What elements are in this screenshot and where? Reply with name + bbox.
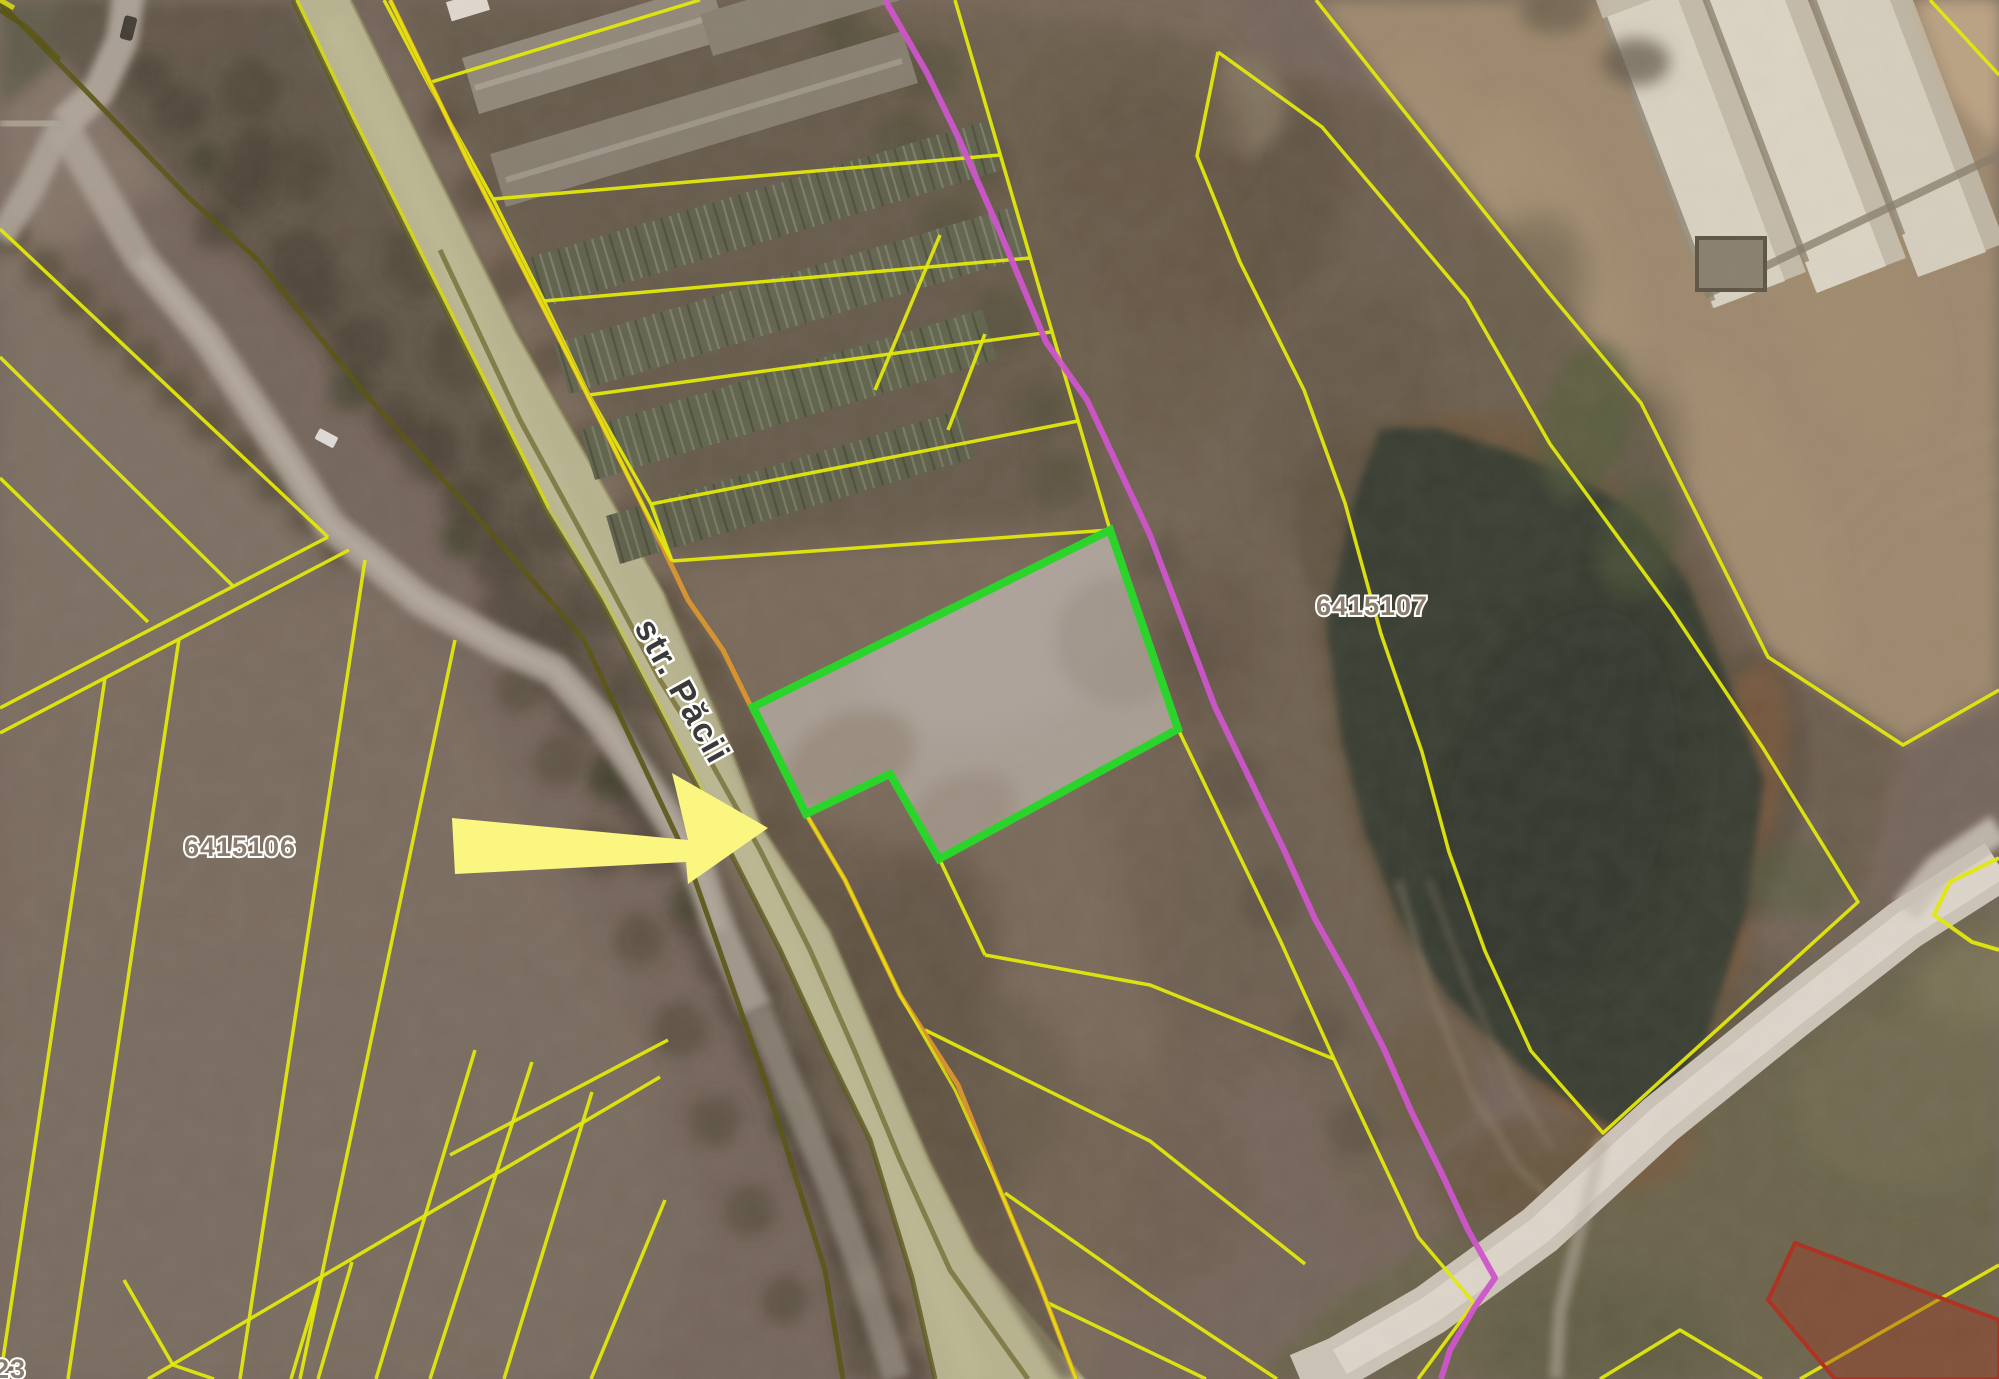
- svg-text:6415106: 6415106: [184, 832, 296, 862]
- svg-text:23: 23: [0, 1354, 26, 1379]
- svg-text:6415107: 6415107: [1316, 591, 1428, 621]
